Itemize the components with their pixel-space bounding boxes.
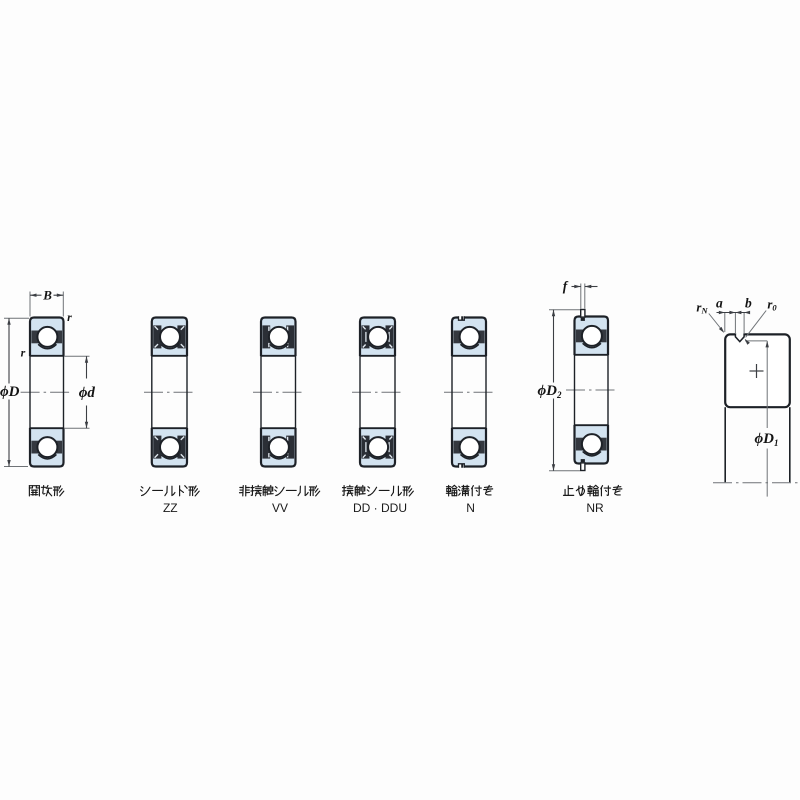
svg-text:ZZ: ZZ — [163, 501, 178, 515]
svg-text:b: b — [745, 296, 752, 311]
svg-text:DD · DDU: DD · DDU — [353, 501, 407, 515]
svg-text:ϕD: ϕD — [0, 384, 20, 400]
svg-text:r: r — [67, 310, 72, 324]
svg-text:VV: VV — [272, 501, 288, 515]
svg-text:a: a — [716, 296, 723, 311]
svg-text:ϕd: ϕd — [79, 385, 96, 401]
svg-text:r: r — [21, 346, 26, 360]
svg-text:N: N — [466, 501, 475, 515]
svg-text:NR: NR — [586, 501, 604, 515]
svg-text:B: B — [42, 288, 52, 303]
